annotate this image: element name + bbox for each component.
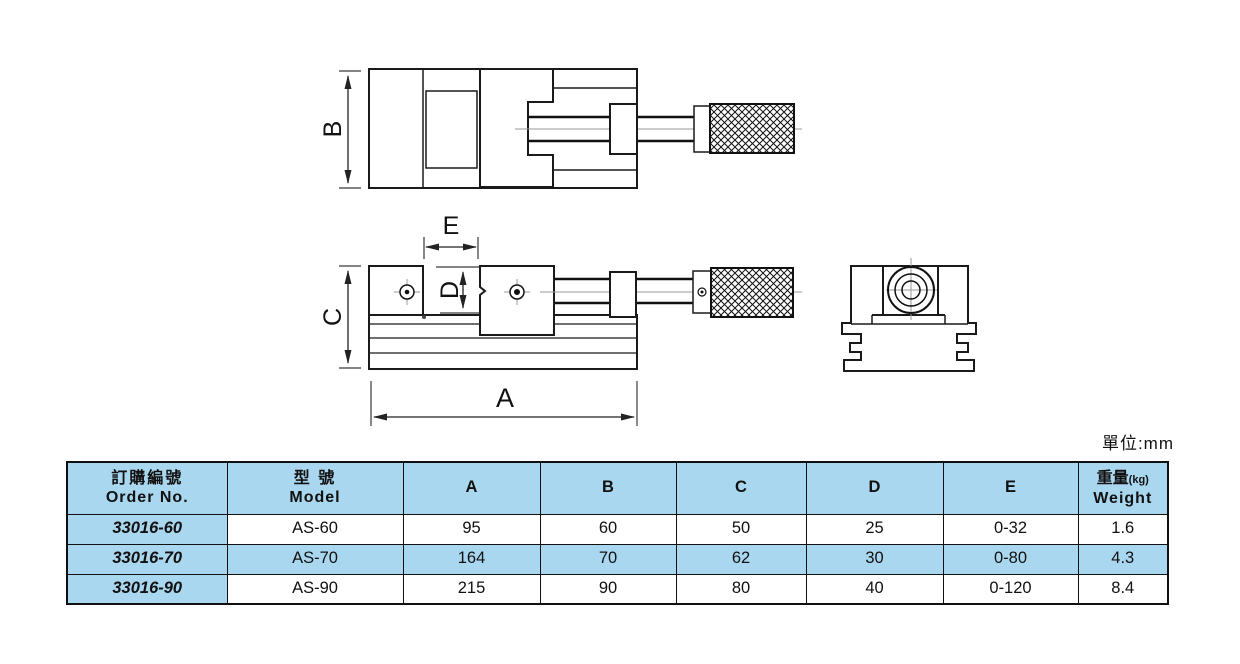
cell-model: AS-70 [227, 544, 403, 574]
cell-c: 80 [676, 574, 806, 604]
model-header-en: Model [228, 488, 403, 507]
cell-e: 0-80 [943, 544, 1078, 574]
weight-header-zh: 重量(kg) [1079, 469, 1168, 489]
dimension-b: B [319, 71, 361, 188]
order-no-header-en: Order No. [68, 488, 227, 507]
weight-header-en: Weight [1079, 489, 1168, 508]
cell-model: AS-60 [227, 514, 403, 544]
cell-order-no: 33016-60 [67, 514, 227, 544]
jaw-pivot-dot [422, 315, 426, 319]
cell-order-no: 33016-90 [67, 574, 227, 604]
dimension-d: D [436, 267, 479, 313]
cell-b: 70 [540, 544, 676, 574]
knurled-knob [711, 268, 793, 317]
cell-a: 164 [403, 544, 540, 574]
col-header-d: D [806, 462, 943, 514]
cell-weight: 1.6 [1078, 514, 1168, 544]
top-view: B [319, 69, 802, 188]
cell-weight: 8.4 [1078, 574, 1168, 604]
dimension-a: A [371, 381, 637, 426]
cell-order-no: 33016-70 [67, 544, 227, 574]
cell-a: 95 [403, 514, 540, 544]
dim-label-e: E [443, 212, 460, 240]
cell-a: 215 [403, 574, 540, 604]
col-header-e: E [943, 462, 1078, 514]
fixed-jaw [369, 266, 423, 315]
col-header-a: A [403, 462, 540, 514]
order-no-header-zh: 訂購編號 [68, 469, 227, 488]
catalog-page: B [0, 0, 1240, 664]
screw-bracket [610, 104, 637, 154]
knurled-knob [710, 104, 794, 153]
screw-bracket [610, 272, 636, 317]
cell-d: 40 [806, 574, 943, 604]
cell-model: AS-90 [227, 574, 403, 604]
table-row: 33016-60 AS-60 95 60 50 25 0-32 1.6 [67, 514, 1168, 544]
cell-b: 60 [540, 514, 676, 544]
cell-c: 50 [676, 514, 806, 544]
spec-table: 訂購編號 Order No. 型 號 Model A B C D E 重量(kg… [66, 461, 1169, 605]
cell-d: 30 [806, 544, 943, 574]
dim-label-d: D [436, 281, 464, 299]
col-header-model: 型 號 Model [227, 462, 403, 514]
dim-label-a: A [496, 383, 514, 413]
col-header-b: B [540, 462, 676, 514]
cell-b: 90 [540, 574, 676, 604]
cell-e: 0-120 [943, 574, 1078, 604]
model-header-zh: 型 號 [228, 469, 403, 488]
unit-label: 單位:mm [1102, 429, 1174, 454]
table-header-row: 訂購編號 Order No. 型 號 Model A B C D E 重量(kg… [67, 462, 1168, 514]
collar-pin-center [701, 291, 704, 294]
dimension-c: C [319, 266, 361, 368]
dim-label-b: B [319, 121, 347, 138]
end-view [842, 258, 976, 371]
table-row: 33016-70 AS-70 164 70 62 30 0-80 4.3 [67, 544, 1168, 574]
col-header-order-no: 訂購編號 Order No. [67, 462, 227, 514]
table-row: 33016-90 AS-90 215 90 80 40 0-120 8.4 [67, 574, 1168, 604]
col-header-weight: 重量(kg) Weight [1078, 462, 1168, 514]
dimension-e: E [424, 212, 478, 259]
cell-c: 62 [676, 544, 806, 574]
dim-label-c: C [319, 308, 347, 326]
cell-weight: 4.3 [1078, 544, 1168, 574]
col-header-c: C [676, 462, 806, 514]
vise-technical-drawing: B [0, 0, 1240, 455]
jaw-opening [426, 91, 477, 168]
knob-collar [694, 106, 710, 152]
front-view: E D C A [319, 212, 802, 426]
cell-d: 25 [806, 514, 943, 544]
cell-e: 0-32 [943, 514, 1078, 544]
